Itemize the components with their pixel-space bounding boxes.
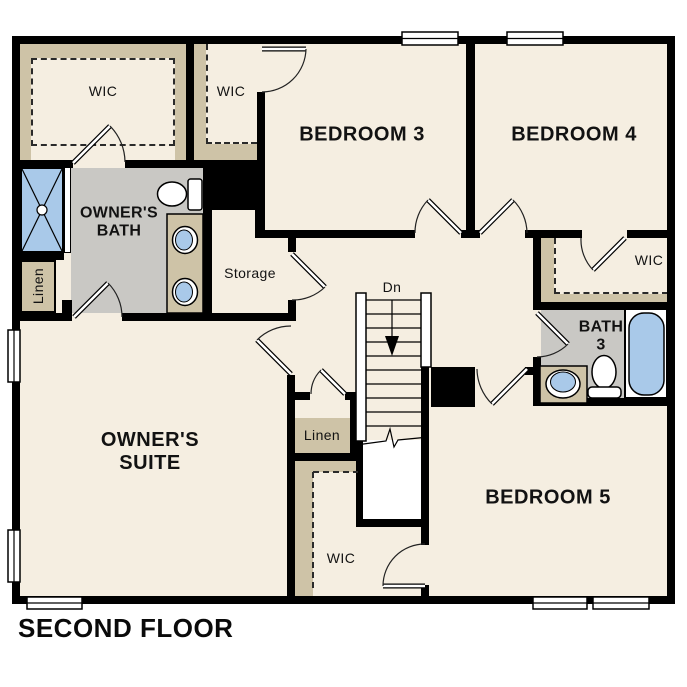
wall-segment (288, 300, 296, 313)
owners-suite-line1: OWNER'S (101, 429, 199, 451)
room-label-linen-hall: Linen (304, 427, 340, 443)
wall-segment (20, 160, 73, 168)
room-label-storage: Storage (224, 265, 276, 281)
wall-segment (466, 44, 475, 232)
wall-segment (122, 313, 296, 321)
room-label-owners-suite: OWNER'S SUITE (101, 429, 199, 475)
window-icon (8, 530, 20, 582)
wic-owner-shelf-line (31, 58, 175, 146)
owners-suite-line2: SUITE (119, 452, 180, 474)
room-label-wic-bedroom4: WIC (635, 252, 663, 268)
wall-segment (287, 453, 358, 461)
wall-segment (533, 398, 675, 406)
wall-segment (288, 238, 296, 252)
room-label-bedroom4: BEDROOM 4 (511, 124, 637, 147)
wall-exterior-right (667, 36, 675, 604)
wall-block-chase (203, 160, 262, 210)
wall-exterior-left-a (12, 36, 20, 330)
wall-segment (203, 210, 212, 313)
wall-block-landing (431, 367, 475, 407)
wic-bedroom5-tan-column (295, 461, 313, 596)
owners-bath-line2: BATH (97, 223, 141, 240)
wall-segment (186, 44, 194, 160)
wall-segment (287, 392, 310, 400)
floor-plan: WIC WIC BEDROOM 3 BEDROOM 4 OWNER'S BATH… (0, 0, 687, 687)
wall-exterior-left-b (12, 382, 20, 530)
bathtub-surround (624, 308, 668, 399)
wall-segment (287, 375, 295, 596)
wic-bedroom5-tan-band (313, 461, 358, 472)
wall-segment (525, 230, 582, 238)
stairs-down-label: Dn (383, 279, 402, 295)
owners-bath-line1: OWNER'S (80, 205, 158, 222)
room-label-wic-bedroom3: WIC (217, 83, 245, 99)
room-label-owners-bath: OWNER'S BATH (80, 205, 158, 242)
room-label-bedroom3: BEDROOM 3 (299, 124, 425, 147)
wall-segment (461, 230, 480, 238)
room-label-bath3: BATH 3 (579, 319, 623, 356)
room-label-wic-bedroom5: WIC (327, 550, 355, 566)
wall-segment (533, 302, 668, 310)
wall-segment (62, 300, 72, 313)
wall-segment (20, 313, 72, 321)
wall-segment (20, 253, 64, 260)
wall-segment (421, 585, 429, 596)
wall-segment (525, 367, 534, 375)
wall-exterior-left-c (12, 582, 20, 604)
wall-exterior-top (12, 36, 675, 44)
page-title: SECOND FLOOR (18, 613, 233, 644)
room-label-bedroom5: BEDROOM 5 (485, 487, 611, 510)
room-label-linen-owner: Linen (30, 268, 46, 304)
wall-exterior-bottom (12, 596, 675, 604)
wall-segment (533, 238, 541, 310)
bath3-line2: 3 (596, 337, 605, 354)
understair-void (356, 440, 429, 527)
window-icon (8, 330, 20, 382)
wall-segment (255, 230, 415, 238)
wall-segment (627, 230, 675, 238)
bath3-line1: BATH (579, 319, 623, 336)
shower-icon (20, 167, 64, 253)
room-label-wic-owner: WIC (89, 83, 117, 99)
shower-glass-icon (64, 167, 71, 253)
